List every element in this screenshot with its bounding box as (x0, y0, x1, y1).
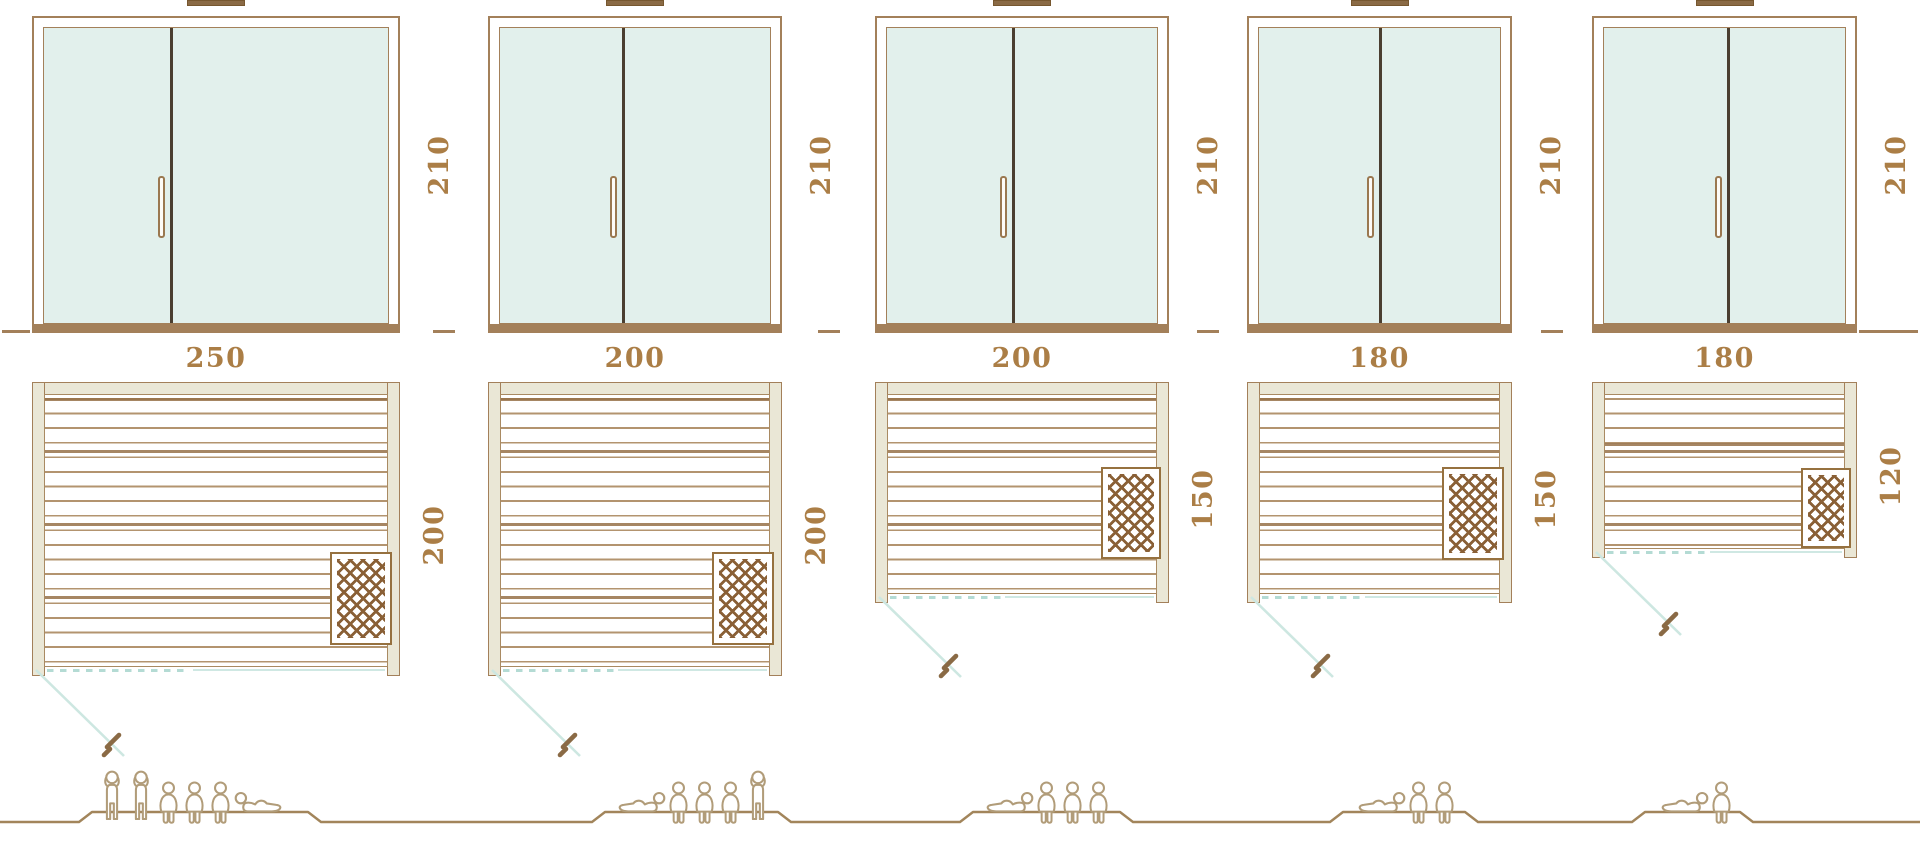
heater-box (330, 552, 392, 645)
door-elevation (875, 16, 1169, 333)
floor-plan (32, 382, 400, 676)
door-height-label: 210 (1538, 125, 1566, 205)
plan-depth-label: 150 (1190, 459, 1218, 539)
roof-vent-icon (1696, 0, 1754, 6)
door-handle (1367, 176, 1374, 238)
heater-coils-icon (1108, 474, 1154, 552)
heater-coils-icon (719, 559, 767, 638)
plan-width-label: 200 (875, 344, 1169, 374)
ground-dash (1541, 330, 1563, 333)
floor-plan (875, 382, 1169, 603)
door-height-label: 210 (1195, 125, 1223, 205)
floor-plan (488, 382, 782, 676)
plan-width-label: 180 (1592, 344, 1857, 374)
door-swing-icon (26, 668, 176, 778)
door-split-line (1379, 28, 1382, 323)
heater-box (1442, 467, 1504, 560)
door-elevation (1247, 16, 1512, 333)
door-handle (1000, 176, 1007, 238)
sauna-column-1: 210 250 200 (32, 0, 400, 856)
door-track-solid (193, 669, 385, 671)
door-split-line (170, 28, 173, 323)
door-height-label: 210 (1883, 125, 1911, 205)
heater-box (1801, 468, 1851, 548)
plan-depth-label: 150 (1533, 459, 1561, 539)
door-sill (1247, 324, 1512, 331)
door-split-line (1012, 28, 1015, 323)
heater-coils-icon (1808, 475, 1844, 541)
roof-vent-icon (606, 0, 664, 6)
sauna-column-4: 210 180 150 (1247, 0, 1512, 856)
door-handle (158, 176, 165, 238)
plan-depth-label: 200 (421, 495, 449, 575)
heater-box (712, 552, 774, 645)
door-track-solid (1005, 596, 1154, 598)
floor-plan (1592, 382, 1857, 558)
door-swing-icon (482, 668, 632, 778)
ground-stub-right (1859, 330, 1918, 333)
door-split-line (1727, 28, 1730, 323)
door-glass (499, 27, 771, 324)
sauna-column-2: 210 200 200 (488, 0, 782, 856)
door-swing-icon (869, 595, 1019, 705)
heater-box (1101, 467, 1161, 559)
door-swing-icon (1241, 595, 1391, 705)
door-glass (886, 27, 1158, 324)
door-handle (1715, 176, 1722, 238)
ground-stub-left (2, 330, 30, 333)
plan-width-label: 250 (32, 344, 400, 374)
door-elevation (32, 16, 400, 333)
door-track-solid (618, 669, 767, 671)
plan-depth-label: 120 (1878, 436, 1906, 516)
door-sill (875, 324, 1169, 331)
door-glass (1603, 27, 1846, 324)
plan-depth-label: 200 (803, 495, 831, 575)
door-sill (32, 324, 400, 331)
door-height-label: 210 (426, 125, 454, 205)
door-sill (488, 324, 782, 331)
plan-width-label: 180 (1247, 344, 1512, 374)
door-elevation (1592, 16, 1857, 333)
ground-dash (818, 330, 840, 333)
ground-dash (1197, 330, 1219, 333)
door-split-line (622, 28, 625, 323)
heater-coils-icon (1449, 474, 1497, 553)
heater-coils-icon (337, 559, 385, 638)
floor-plan (1247, 382, 1512, 603)
roof-vent-icon (187, 0, 245, 6)
door-elevation (488, 16, 782, 333)
sauna-column-5: 210 180 120 (1592, 0, 1857, 856)
door-glass (43, 27, 389, 324)
sauna-column-3: 210 200 150 (875, 0, 1169, 856)
door-sill (1592, 324, 1857, 331)
sauna-diagram: 210 250 200 210 200 (0, 0, 1920, 856)
ground-dash (433, 330, 455, 333)
door-swing-icon (1586, 550, 1736, 660)
ground-line (0, 780, 1920, 840)
plan-width-label: 200 (488, 344, 782, 374)
roof-vent-icon (993, 0, 1051, 6)
door-handle (610, 176, 617, 238)
roof-vent-icon (1351, 0, 1409, 6)
door-height-label: 210 (808, 125, 836, 205)
